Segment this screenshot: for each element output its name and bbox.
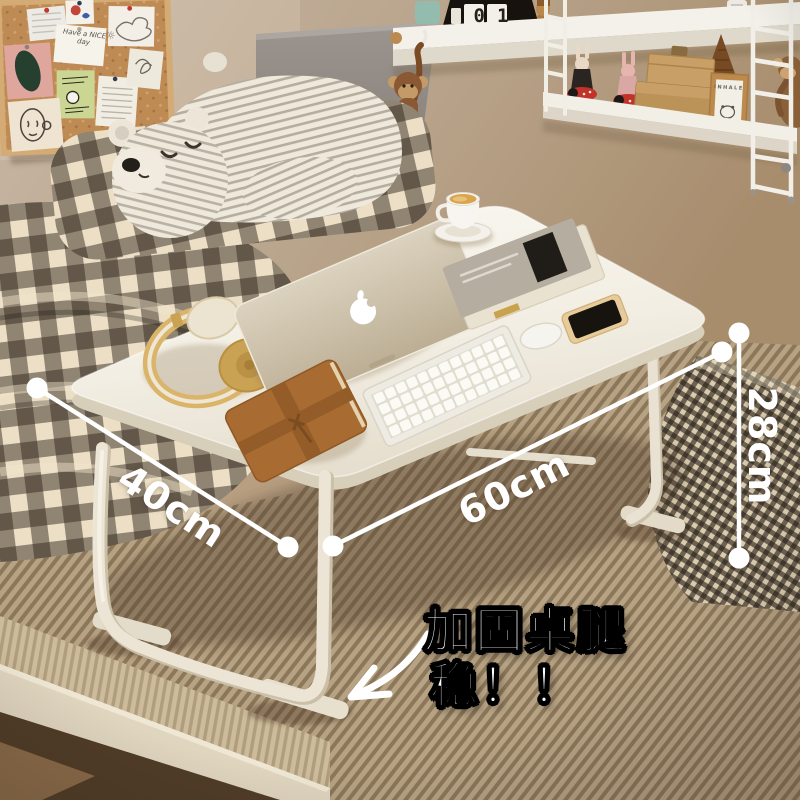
scene-illustration (0, 0, 800, 800)
product-photo: 40cm 60cm 28cm 加固桌腿 稳！！ Have a NICE day … (0, 0, 800, 800)
vignette (0, 0, 800, 800)
